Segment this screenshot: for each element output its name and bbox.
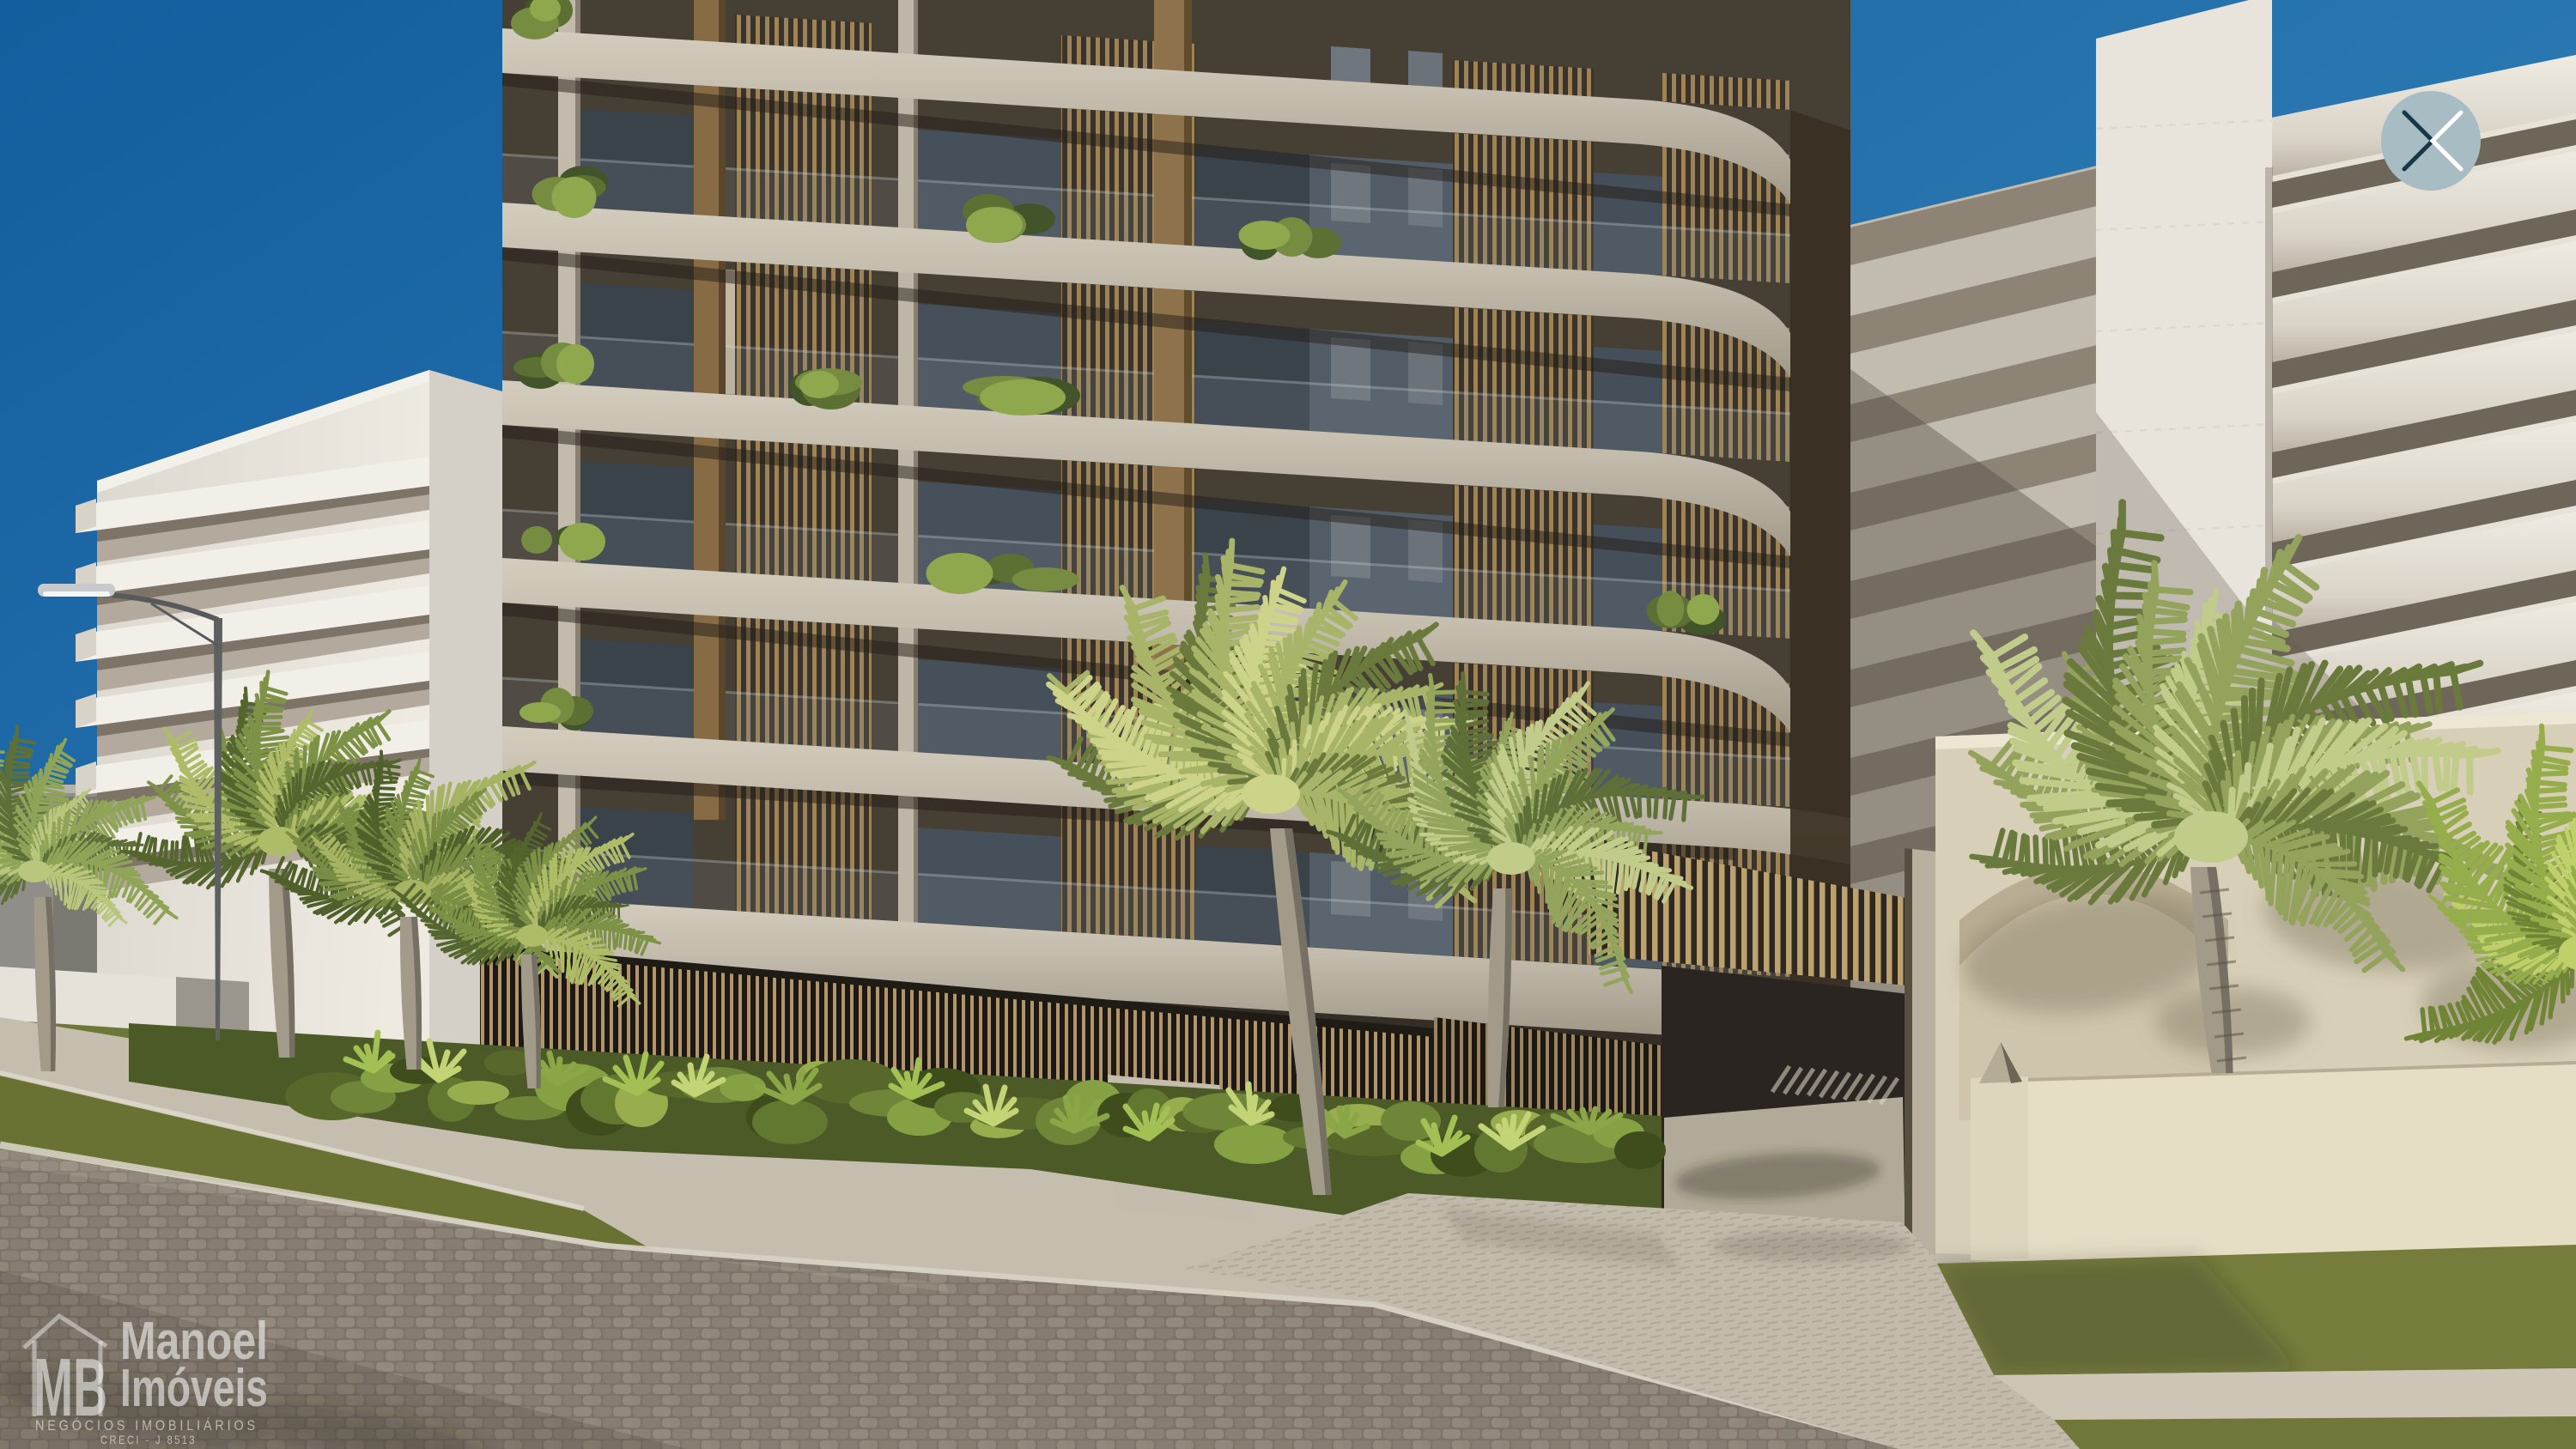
svg-text:CRECI - J 8513: CRECI - J 8513 [100, 1433, 197, 1446]
svg-text:Imóveis: Imóveis [120, 1359, 268, 1418]
svg-text:NEGÓCIOS IMOBILIÁRIOS: NEGÓCIOS IMOBILIÁRIOS [35, 1417, 258, 1434]
